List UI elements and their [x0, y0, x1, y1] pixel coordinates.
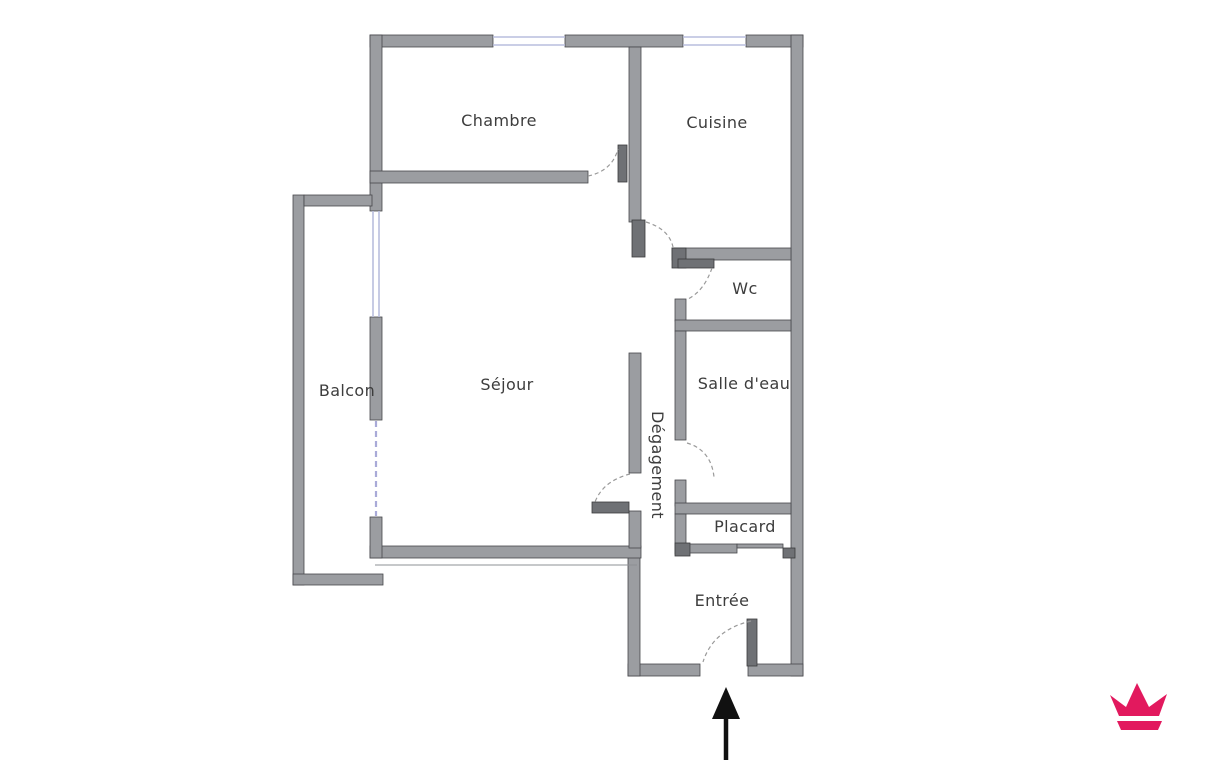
arrow-head	[712, 687, 740, 719]
floor-plan-image: Chambre Cuisine Balcon Séjour Wc Salle d…	[0, 0, 1209, 784]
door-leaf-wc	[678, 259, 714, 268]
door-arc-chambre	[588, 149, 618, 176]
wall-segment	[370, 35, 493, 47]
door-arc-entrance	[703, 621, 751, 662]
wall-segment	[675, 480, 686, 506]
room-label-salle-deau: Salle d'eau	[698, 374, 791, 393]
room-label-wc: Wc	[732, 279, 757, 298]
wall-segment	[675, 331, 686, 440]
wall-segment	[293, 574, 383, 585]
wall-segment	[675, 320, 791, 331]
wall-segment	[565, 35, 683, 47]
room-label-cuisine: Cuisine	[686, 113, 747, 132]
wall-segment	[675, 503, 791, 514]
door-arc-salle-deau	[687, 443, 714, 477]
crown-band	[1117, 721, 1162, 730]
wall-segment	[628, 552, 640, 676]
wall-segment	[370, 35, 382, 211]
wall-segment	[629, 511, 641, 548]
door-leaf-sejour	[592, 502, 629, 513]
wall-jamb	[675, 543, 690, 556]
room-label-placard: Placard	[714, 517, 776, 536]
doors	[588, 145, 757, 666]
wall-segment	[672, 248, 791, 260]
wall-segment	[629, 353, 641, 473]
floor-plan-svg: Chambre Cuisine Balcon Séjour Wc Salle d…	[0, 0, 1209, 784]
wall-segment	[629, 47, 641, 222]
wall-segment	[304, 195, 372, 206]
wall-segment	[370, 317, 382, 420]
wall-segment	[675, 299, 686, 321]
wall-segment	[370, 517, 382, 558]
door-arc-wc	[688, 268, 712, 299]
door-leaf-cuisine	[632, 220, 645, 257]
door-arc-cuisine	[646, 222, 673, 247]
room-labels: Chambre Cuisine Balcon Séjour Wc Salle d…	[319, 111, 790, 610]
room-label-balcon: Balcon	[319, 381, 375, 400]
door-arc-sejour	[595, 474, 630, 502]
wall-segment	[737, 544, 783, 548]
wall-segment	[370, 171, 588, 183]
crown-body	[1110, 683, 1167, 716]
crown-logo-icon	[1110, 683, 1167, 730]
wall-segment	[370, 546, 641, 558]
wall-segment	[293, 195, 304, 585]
room-label-degagement: Dégagement	[648, 411, 667, 519]
room-label-sejour: Séjour	[480, 375, 533, 394]
room-label-chambre: Chambre	[461, 111, 537, 130]
wall-jamb	[783, 548, 795, 558]
entrance-arrow-icon	[712, 687, 740, 760]
wall-segment	[791, 35, 803, 676]
wall-segment	[690, 544, 737, 553]
room-label-entree: Entrée	[695, 591, 750, 610]
door-leaf-entrance	[747, 619, 757, 666]
door-leaf-chambre	[618, 145, 627, 182]
